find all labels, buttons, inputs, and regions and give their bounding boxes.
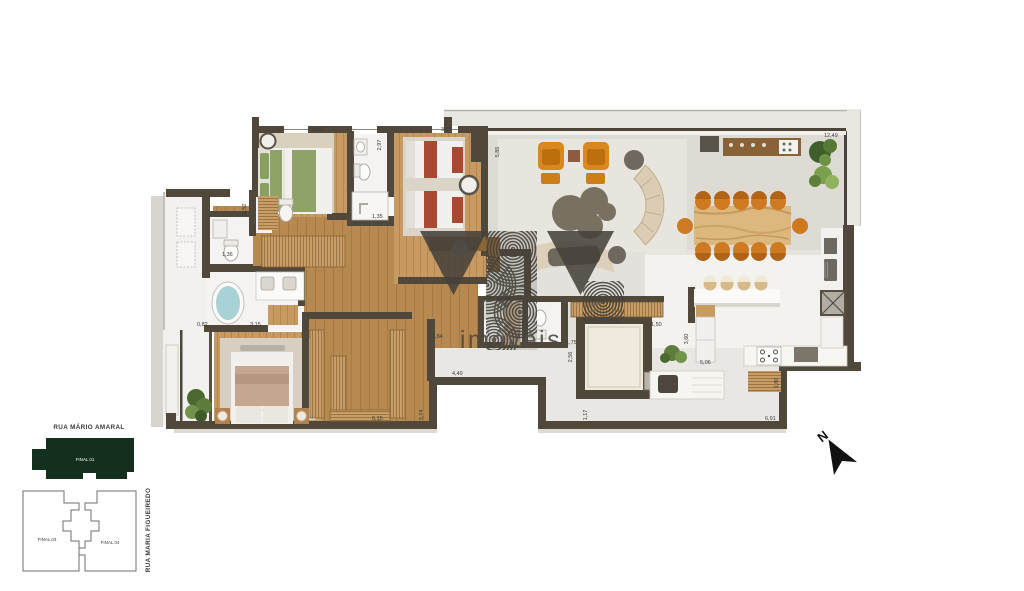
svg-text:3,60: 3,60 [684, 334, 690, 345]
svg-text:6,15: 6,15 [372, 416, 383, 422]
svg-text:12,49: 12,49 [824, 133, 838, 139]
svg-text:2,09: 2,09 [312, 127, 323, 133]
svg-text:RUA MÁRIO AMARAL: RUA MÁRIO AMARAL [53, 422, 124, 431]
svg-text:0,83: 0,83 [528, 329, 533, 338]
svg-text:4,49: 4,49 [452, 371, 463, 377]
svg-text:RUA MARIA FIGUEIREDO: RUA MARIA FIGUEIREDO [145, 488, 152, 573]
svg-text:0,82: 0,82 [197, 322, 208, 328]
svg-text:1,84: 1,84 [432, 334, 443, 340]
svg-text:1,50: 1,50 [651, 322, 662, 328]
svg-text:1,80: 1,80 [774, 378, 780, 389]
svg-text:2,56: 2,56 [568, 352, 574, 363]
svg-text:3,07: 3,07 [441, 127, 452, 133]
svg-text:2,52: 2,52 [242, 204, 248, 215]
svg-text:1,36: 1,36 [222, 252, 233, 258]
svg-text:5,06: 5,06 [700, 360, 711, 366]
svg-text:5,85: 5,85 [495, 147, 501, 158]
svg-text:1,35: 1,35 [372, 214, 383, 220]
svg-text:1,75: 1,75 [566, 340, 577, 346]
svg-text:6,91: 6,91 [765, 416, 776, 422]
svg-text:2,97: 2,97 [377, 140, 383, 151]
svg-text:FINAL 03: FINAL 03 [38, 537, 57, 542]
svg-text:1,03: 1,03 [516, 329, 521, 338]
svg-text:imóveis: imóveis [460, 326, 562, 354]
svg-text:FINAL 04: FINAL 04 [101, 540, 120, 545]
svg-text:1,17: 1,17 [583, 410, 589, 421]
svg-text:3,74: 3,74 [419, 410, 425, 421]
svg-text:3,15: 3,15 [250, 322, 261, 328]
svg-text:FINAL 01: FINAL 01 [76, 457, 95, 462]
